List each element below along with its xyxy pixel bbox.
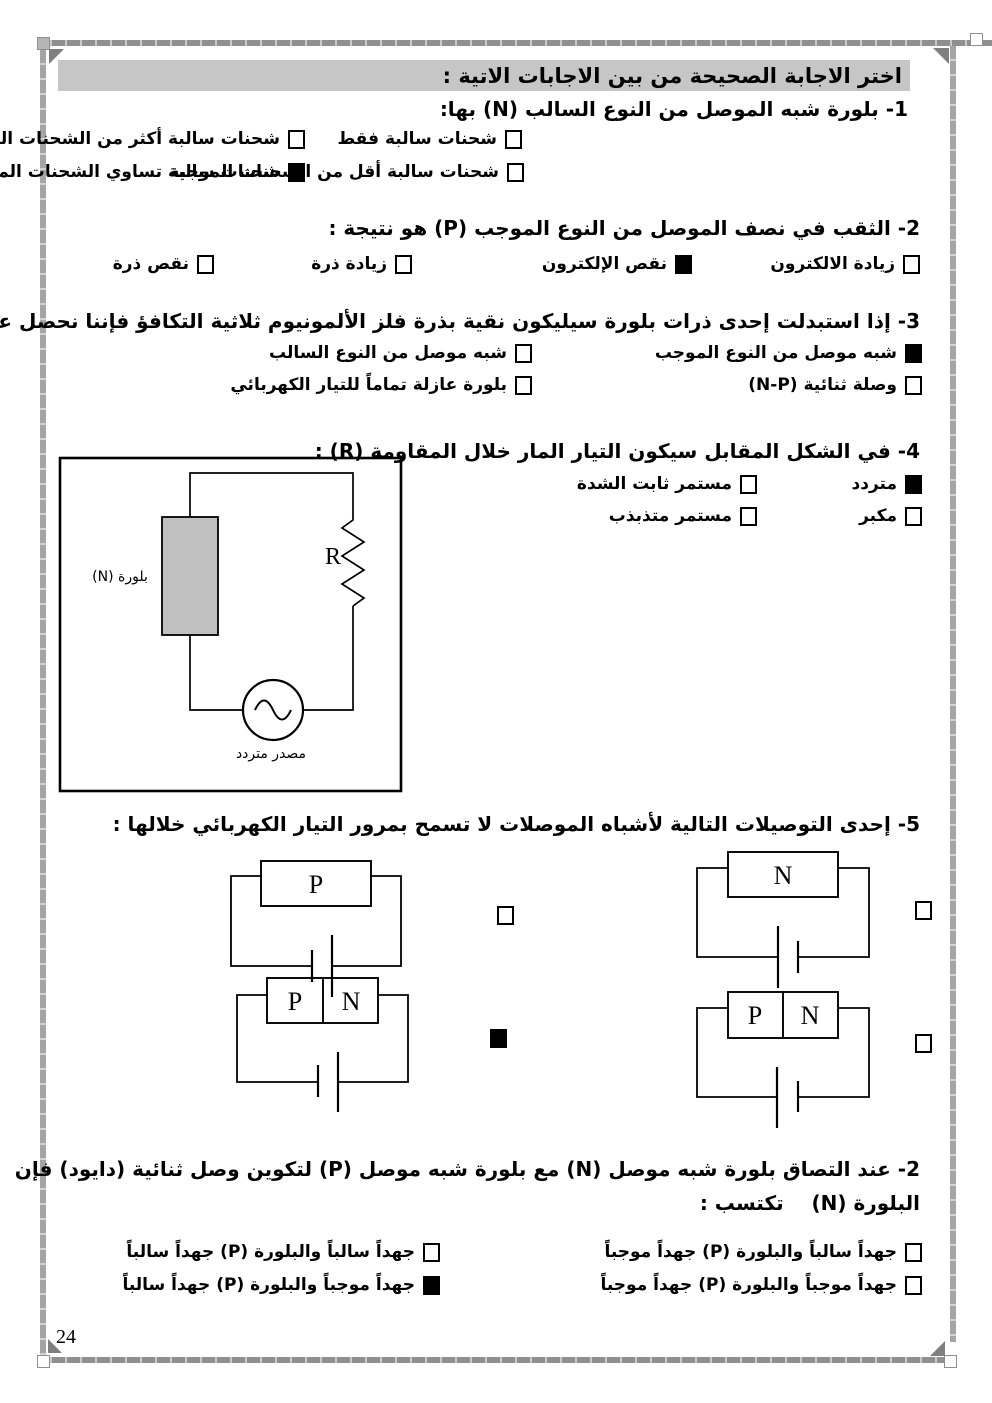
q3-option-2-label: شبه موصل من النوع السالب xyxy=(269,343,507,363)
q2-option-1-label: زيادة الالكترون xyxy=(770,254,895,274)
q6-option-2-checkbox[interactable] xyxy=(423,1243,440,1262)
q3-option-4-checkbox[interactable] xyxy=(515,376,532,395)
table-handle-bottom-right[interactable] xyxy=(944,1355,957,1368)
q1-option-4-checkbox[interactable] xyxy=(288,163,305,182)
q4-option-3[interactable]: مكبر xyxy=(859,501,922,531)
q6-option-1[interactable]: جهداً سالباً والبلورة (P) جهداً موجباً xyxy=(604,1237,922,1267)
q4-option-3-checkbox[interactable] xyxy=(905,507,922,526)
q5-diagram4-checkbox[interactable] xyxy=(915,1034,932,1053)
q4-option-1-label: متردد xyxy=(852,474,898,494)
question-6-text-line1: 2- عند التصاق بلورة شبه موصل (N) مع بلور… xyxy=(15,1155,920,1183)
q6-option-3-checkbox[interactable] xyxy=(905,1276,922,1295)
q1-option-1-checkbox[interactable] xyxy=(505,130,522,149)
ac-source-label: مصدر متردد xyxy=(236,746,306,762)
q1-option-2[interactable]: شحنات سالبة أكثر من الشحنات الموجبة xyxy=(0,124,305,154)
diagram4-p-label: P xyxy=(748,1001,762,1030)
q1-option-4-label: شحنات سالبة تساوي الشحنات الموجبة xyxy=(0,162,280,182)
q3-option-2[interactable]: شبه موصل من النوع السالب xyxy=(269,338,532,368)
q4-option-2-label: مستمر ثابت الشدة xyxy=(577,474,732,494)
q1-option-2-label: شحنات سالبة أكثر من الشحنات الموجبة xyxy=(0,129,280,149)
corner-marker-top-right xyxy=(933,48,949,64)
q4-circuit-diagram: R بلورة (N) مصدر متردد xyxy=(58,456,406,794)
q6-option-3-label: جهداً موجباً والبلورة (P) جهداً موجباً xyxy=(600,1275,897,1295)
q4-option-4[interactable]: مستمر متذبذب xyxy=(609,501,757,531)
q3-option-3-label: وصلة ثنائية (N-P) xyxy=(748,375,897,395)
q3-option-3[interactable]: وصلة ثنائية (N-P) xyxy=(748,370,922,400)
q2-option-3-checkbox[interactable] xyxy=(395,255,412,274)
q2-option-1-checkbox[interactable] xyxy=(903,255,920,274)
q1-option-4[interactable]: شحنات سالبة تساوي الشحنات الموجبة xyxy=(0,157,305,187)
question-6-text-line2: البلورة (N) تكتسب : xyxy=(700,1189,920,1217)
question-3-text: 3- إذا استبدلت إحدى ذرات بلورة سيليكون ن… xyxy=(0,307,920,335)
q1-option-3-checkbox[interactable] xyxy=(507,163,524,182)
table-border-bottom xyxy=(37,1357,956,1363)
q2-option-3[interactable]: زيادة ذرة xyxy=(311,249,412,279)
q2-option-2-label: نقص الإلكترون xyxy=(542,254,667,274)
page-number: 24 xyxy=(56,1326,76,1349)
diagram3-n-label: N xyxy=(342,987,361,1016)
q4-option-1-checkbox[interactable] xyxy=(905,475,922,494)
q3-option-3-checkbox[interactable] xyxy=(905,376,922,395)
q1-option-1-label: شحنات سالبة فقط xyxy=(337,129,497,149)
q6-option-2[interactable]: جهداً سالباً والبلورة (P) جهداً سالباً xyxy=(126,1237,440,1267)
question-5-text: 5- إحدى التوصيلات التالية لأشباه الموصلا… xyxy=(113,810,920,838)
q3-option-4[interactable]: بلورة عازلة تماماً للتيار الكهربائي xyxy=(230,370,532,400)
instructions-title: اختر الاجابة الصحيحة من بين الاجابات الا… xyxy=(443,64,910,88)
q6-option-1-label: جهداً سالباً والبلورة (P) جهداً موجباً xyxy=(604,1242,897,1262)
q4-option-4-checkbox[interactable] xyxy=(740,507,757,526)
question-2-text: 2- الثقب في نصف الموصل من النوع الموجب (… xyxy=(328,214,920,242)
resistor-zigzag xyxy=(342,515,364,606)
q2-option-4[interactable]: نقص ذرة xyxy=(113,249,214,279)
instructions-bar: اختر الاجابة الصحيحة من بين الاجابات الا… xyxy=(58,60,910,91)
q2-option-1[interactable]: زيادة الالكترون xyxy=(770,249,920,279)
table-handle-bottom-left[interactable] xyxy=(37,1355,50,1368)
diagram4-n-label: N xyxy=(801,1001,820,1030)
q2-option-2-checkbox[interactable] xyxy=(675,255,692,274)
corner-marker-bottom-right xyxy=(930,1341,945,1356)
table-handle-top-right[interactable] xyxy=(970,33,983,46)
resistor-label: R xyxy=(325,544,341,570)
table-border-right xyxy=(950,46,956,1342)
q2-option-2[interactable]: نقص الإلكترون xyxy=(542,249,692,279)
q4-option-2-checkbox[interactable] xyxy=(740,475,757,494)
q4-option-1[interactable]: متردد xyxy=(852,469,923,499)
q3-option-4-label: بلورة عازلة تماماً للتيار الكهربائي xyxy=(230,375,507,395)
q4-option-3-label: مكبر xyxy=(859,506,897,526)
q4-option-4-label: مستمر متذبذب xyxy=(609,506,732,526)
worksheet-page: اختر الاجابة الصحيحة من بين الاجابات الا… xyxy=(0,0,992,1403)
q3-option-1-label: شبه موصل من النوع الموجب xyxy=(655,343,897,363)
question-1-text: 1- بلورة شبه الموصل من النوع السالب (N) … xyxy=(440,95,908,123)
q1-option-2-checkbox[interactable] xyxy=(288,130,305,149)
q6-option-4-label: جهداً موجباً والبلورة (P) جهداً سالباً xyxy=(122,1275,415,1295)
diagram1-p-label: P xyxy=(309,870,323,899)
q1-option-1[interactable]: شحنات سالبة فقط xyxy=(337,124,522,154)
q6-option-4-checkbox[interactable] xyxy=(423,1276,440,1295)
crystal-n-block xyxy=(162,517,218,635)
q2-option-4-checkbox[interactable] xyxy=(197,255,214,274)
crystal-label: بلورة (N) xyxy=(92,569,148,585)
q4-option-2[interactable]: مستمر ثابت الشدة xyxy=(577,469,757,499)
q6-option-3[interactable]: جهداً موجباً والبلورة (P) جهداً موجباً xyxy=(600,1270,922,1300)
diagram3-p-label: P xyxy=(288,987,302,1016)
q3-option-1-checkbox[interactable] xyxy=(905,344,922,363)
q5-connection-diagrams: P N P N P N xyxy=(225,845,875,1135)
table-border-top xyxy=(37,40,992,46)
q6-option-1-checkbox[interactable] xyxy=(905,1243,922,1262)
q3-option-1[interactable]: شبه موصل من النوع الموجب xyxy=(655,338,922,368)
diagram2-n-label: N xyxy=(774,861,793,890)
q2-option-3-label: زيادة ذرة xyxy=(311,254,387,274)
q6-option-2-label: جهداً سالباً والبلورة (P) جهداً سالباً xyxy=(126,1242,415,1262)
q2-option-4-label: نقص ذرة xyxy=(113,254,189,274)
q3-option-2-checkbox[interactable] xyxy=(515,344,532,363)
q5-diagram3-checkbox[interactable] xyxy=(490,1029,507,1048)
q5-diagram2-checkbox[interactable] xyxy=(915,901,932,920)
q6-option-4[interactable]: جهداً موجباً والبلورة (P) جهداً سالباً xyxy=(122,1270,440,1300)
circuit-frame xyxy=(60,458,401,791)
q5-diagram1-checkbox[interactable] xyxy=(497,906,514,925)
